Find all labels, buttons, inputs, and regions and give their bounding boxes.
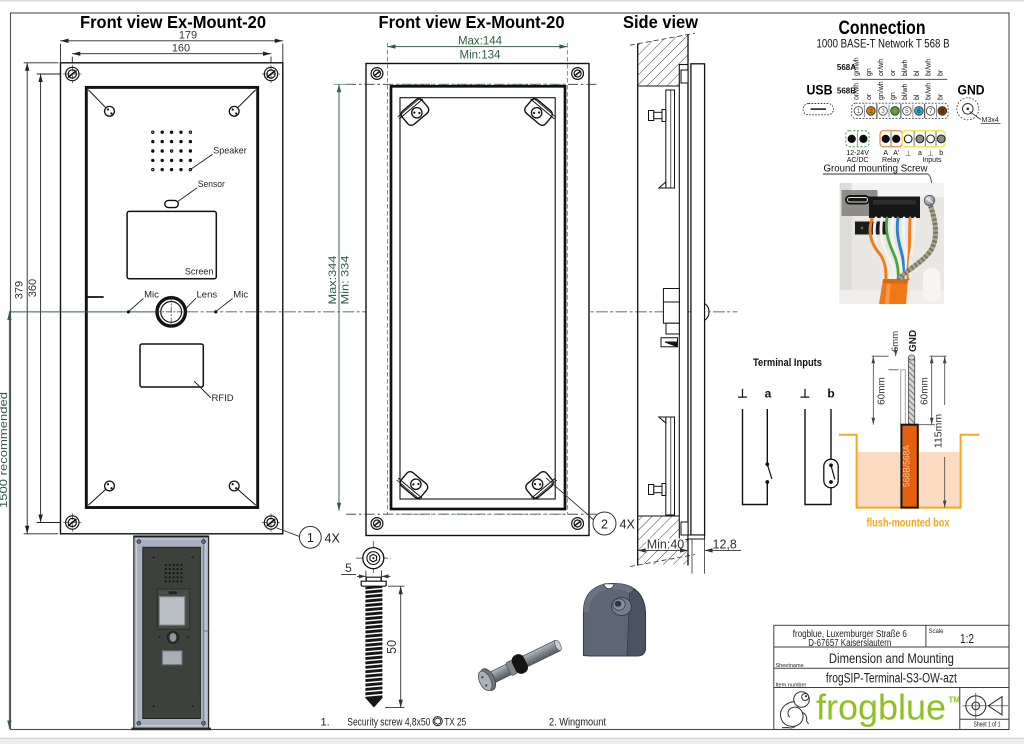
svg-text:or/wh: or/wh <box>853 83 860 100</box>
svg-text:1: 1 <box>307 531 314 545</box>
svg-text:bl: bl <box>914 70 921 76</box>
svg-text:or/wh: or/wh <box>878 59 885 76</box>
svg-text:Mic: Mic <box>233 289 248 300</box>
svg-text:2. Wingmount: 2. Wingmount <box>549 716 606 728</box>
svg-text:4X: 4X <box>325 531 341 545</box>
svg-text:50: 50 <box>385 640 399 654</box>
svg-text:Min:40: Min:40 <box>647 537 685 551</box>
svg-text:Side view: Side view <box>623 12 698 32</box>
svg-text:flush-mounted box: flush-mounted box <box>867 516 950 530</box>
svg-text:or: or <box>890 69 897 76</box>
svg-text:GND: GND <box>958 82 985 98</box>
svg-text:60mm: 60mm <box>920 377 931 405</box>
svg-text:M3x4: M3x4 <box>982 117 999 124</box>
svg-text:⊥: ⊥ <box>905 151 911 158</box>
svg-text:USB: USB <box>807 82 833 98</box>
svg-text:1500 recommended: 1500 recommended <box>0 392 10 508</box>
svg-text:5: 5 <box>345 561 352 575</box>
svg-text:gn/wh: gn/wh <box>853 57 860 76</box>
svg-text:b: b <box>827 387 834 401</box>
svg-text:frogSIP-Terminal-S3-OW-azt: frogSIP-Terminal-S3-OW-azt <box>826 671 957 686</box>
svg-text:1.: 1. <box>321 716 330 728</box>
svg-text:bl: bl <box>914 94 921 100</box>
svg-text:gn: gn <box>890 92 897 100</box>
svg-text:Security screw 4,8x50: Security screw 4,8x50 <box>347 716 430 728</box>
svg-text:1: 1 <box>857 108 861 115</box>
svg-text:bl/wh: bl/wh <box>902 84 909 100</box>
svg-text:GND: GND <box>908 330 919 352</box>
svg-text:8: 8 <box>940 108 944 115</box>
svg-text:2: 2 <box>601 517 608 531</box>
svg-text:gn/wh: gn/wh <box>878 81 885 100</box>
svg-text:160: 160 <box>172 43 190 55</box>
svg-text:6: 6 <box>917 108 921 115</box>
svg-text:a: a <box>765 387 772 401</box>
svg-text:Speaker: Speaker <box>213 146 247 157</box>
svg-text:Screen: Screen <box>185 266 214 277</box>
svg-text:1:2: 1:2 <box>960 632 974 646</box>
svg-text:12,8: 12,8 <box>713 537 737 551</box>
svg-text:br: br <box>937 69 944 76</box>
svg-text:4X: 4X <box>620 518 636 532</box>
svg-text:568B/568A: 568B/568A <box>902 445 912 487</box>
svg-text:or: or <box>866 93 873 100</box>
svg-text:Sheet 1 of 1: Sheet 1 of 1 <box>974 722 1001 729</box>
svg-text:A': A' <box>893 150 899 157</box>
svg-text:179: 179 <box>179 30 197 42</box>
svg-text:gn: gn <box>866 68 873 76</box>
svg-text:2: 2 <box>869 108 873 115</box>
svg-text:A: A <box>883 150 888 157</box>
svg-text:115mm: 115mm <box>933 414 945 448</box>
svg-text:7: 7 <box>929 108 933 115</box>
svg-text:RFID: RFID <box>212 393 234 404</box>
svg-text:360: 360 <box>27 279 39 297</box>
svg-text:Front view Ex-Mount-20: Front view Ex-Mount-20 <box>379 12 565 32</box>
svg-text:br/wh: br/wh <box>926 83 933 100</box>
svg-text:5: 5 <box>905 108 909 115</box>
svg-text:Sheetname: Sheetname <box>776 663 804 669</box>
svg-text:br/wh: br/wh <box>926 59 933 76</box>
svg-text:D-67657 Kaiserslautern: D-67657 Kaiserslautern <box>808 638 891 649</box>
svg-text:br: br <box>937 93 944 100</box>
svg-text:Max:344: Max:344 <box>327 256 339 305</box>
svg-text:Min:134: Min:134 <box>460 49 502 61</box>
svg-text:Ground mounting Screw: Ground mounting Screw <box>824 163 928 175</box>
svg-text:Front view Ex-Mount-20: Front view Ex-Mount-20 <box>80 12 266 32</box>
svg-text:379: 379 <box>14 281 26 299</box>
svg-text:b: b <box>939 150 943 157</box>
svg-text:Terminal Inputs: Terminal Inputs <box>753 357 822 369</box>
svg-text:12-24V: 12-24V <box>846 150 869 157</box>
svg-text:Min: 334: Min: 334 <box>340 256 352 305</box>
svg-text:frogblue: frogblue <box>816 687 946 728</box>
svg-text:TM: TM <box>949 696 961 705</box>
svg-text:Max:144: Max:144 <box>458 36 503 48</box>
svg-text:Scale: Scale <box>929 629 945 635</box>
svg-text:Sensor: Sensor <box>198 179 225 190</box>
svg-text:Mic: Mic <box>144 289 159 300</box>
svg-text:TX 25: TX 25 <box>444 716 466 728</box>
svg-text:a: a <box>918 150 922 157</box>
svg-text:Connection: Connection <box>839 17 926 39</box>
svg-text:Item number: Item number <box>776 682 807 688</box>
svg-text:60mm: 60mm <box>877 377 888 405</box>
svg-text:3: 3 <box>881 108 885 115</box>
svg-text:4: 4 <box>893 108 897 115</box>
svg-text:bl/wh: bl/wh <box>902 60 909 76</box>
svg-text:Lens: Lens <box>197 289 218 300</box>
svg-text:⊥: ⊥ <box>800 387 810 401</box>
svg-text:⊥: ⊥ <box>737 387 747 401</box>
svg-text:1000 BASE-T Network T 568 B: 1000 BASE-T Network T 568 B <box>817 39 950 51</box>
svg-text:6mm: 6mm <box>890 331 901 352</box>
svg-text:Dimension and Mounting: Dimension and Mounting <box>829 651 954 666</box>
